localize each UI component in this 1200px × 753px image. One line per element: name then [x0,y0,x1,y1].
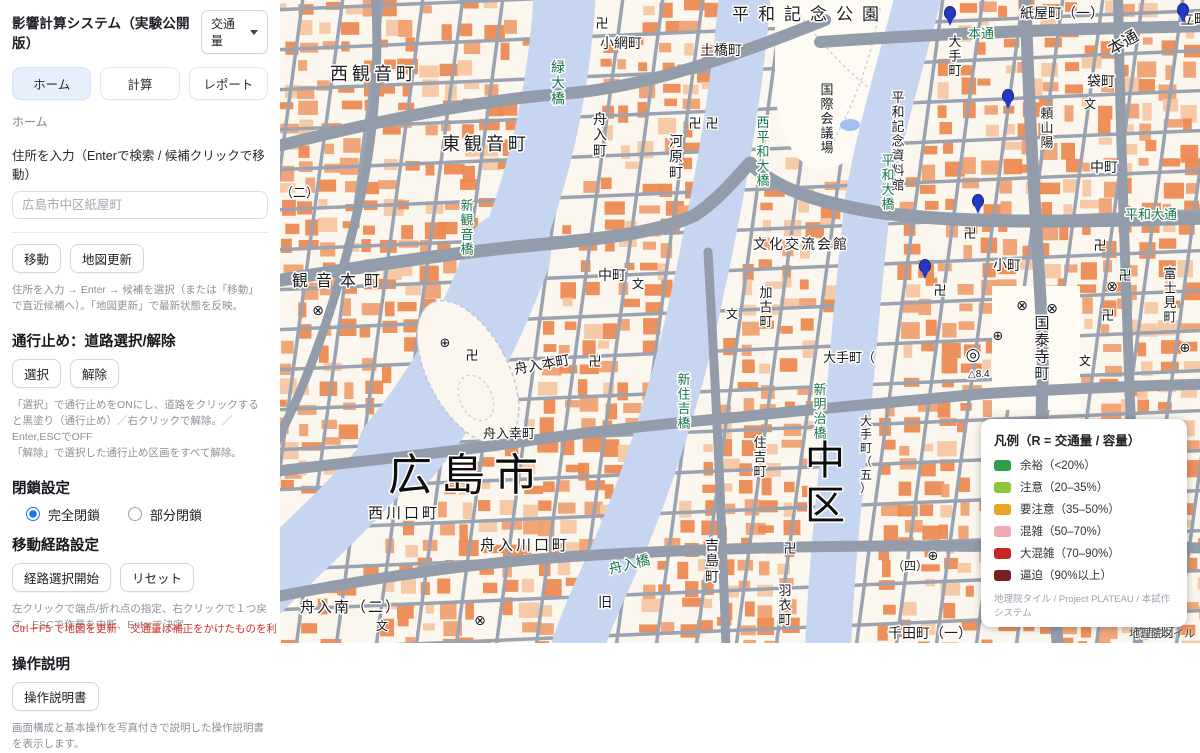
map-label: 西川口町 [368,505,440,522]
map-label: 袋町 [1087,73,1115,89]
mode-select-value: 交通量 [211,15,243,49]
app-title: 影響計算システム（実験公開版） [12,12,201,52]
map-update-button[interactable]: 地図更新 [70,244,144,273]
route-heading: 移動経路設定 [12,534,268,555]
legend-chip-pink [994,526,1011,537]
map-symbol: 卍 [783,541,796,556]
map-label: 大手町（五） [860,414,872,495]
map-label: 河原町 [669,133,683,180]
tab-report[interactable]: レポート [189,67,268,100]
address-input[interactable] [12,191,268,219]
chevron-down-icon [250,30,258,35]
map-label: 中町 [1090,159,1118,175]
map-label: 紙屋町（一） [1020,5,1104,21]
map-label: 新住吉橋 [677,372,690,431]
legend-title: 凡例（R = 交通量 / 容量） [994,430,1174,449]
map-label: 大手町 [948,34,961,78]
map-label: 新明治橋 [813,382,826,441]
map-label: 小網町 [600,35,642,51]
legend-label: 混雑（50–70%） [1020,523,1108,539]
legend-chip-green [994,460,1011,471]
map-symbol: ⊗ [1106,278,1118,294]
manual-help: 画面構成と基本操作を写真付きで説明した操作説明書を表示します。 [12,720,268,753]
legend-chip-red [994,548,1011,559]
legend-chip-darkred [994,570,1011,581]
route-reset-button[interactable]: リセット [120,563,194,592]
map-symbol: ⊗ [1046,300,1058,316]
map-label: （二） [280,185,319,200]
map-label: （四） [892,559,928,573]
tab-home[interactable]: ホーム [12,67,91,100]
map-label: 舟入川口町 [480,537,570,554]
legend-item: 大混雑（70–90%） [994,545,1174,561]
road-closure-help-2: 「解除」で選択した通行止め区画をすべて解除。 [12,447,242,459]
map-symbol: ⊗ [474,612,486,628]
address-buttons: 移動 地図更新 [12,244,268,273]
map-label: 平和大通 [1125,207,1177,222]
map-symbol: 卍 [1093,238,1106,253]
manual-heading: 操作説明 [12,653,268,674]
map-label: 広島市 [388,451,547,500]
map-canvas[interactable]: 卍卍卍卍卍卍卍卍卍卍卍⊗⊗⊗⊗⊗⊕⊕⊕⊕文文文文文◎平和記念公園小網町土橋町西観… [280,0,1200,643]
map-label: 文化交流会館 [753,236,849,252]
move-button[interactable]: 移動 [12,244,61,273]
radio-partial-closure[interactable]: 部分閉鎖 [128,505,202,524]
legend-label: 逼迫（90%以上） [1020,567,1112,583]
map-symbol: 卍 [705,116,718,131]
map-label: 羽衣町 [778,583,791,627]
map-symbol: 卍 [933,283,946,298]
map-label: 千田町（一） [888,625,972,641]
map-symbol: 卍 [963,226,976,241]
map-symbol: 卍 [1118,268,1131,283]
map-label: 平和大橋 [881,153,894,212]
map-label: 国泰寺町 [1034,315,1049,382]
map-symbol: ⊕ [1180,340,1191,355]
map-symbol: ◎ [966,345,981,364]
tab-bar: ホーム 計算 レポート [12,67,268,100]
map-label: 緑大橋 [551,59,565,106]
map-symbol: 卍 [595,16,608,31]
map-label: 舟入南（二） [300,599,402,616]
map-symbol: ⊕ [928,548,939,563]
map-label: 新観音橋 [460,198,473,257]
legend-item: 要注意（35–50%） [994,501,1174,517]
map-label: 富士見町 [1163,266,1176,325]
map-label: 平和記念公園 [732,4,888,24]
map-symbol: ⊕ [993,328,1004,343]
map-label: 観音本町 [292,272,388,290]
map-symbol: 文 [1084,96,1096,111]
closure-options: 完全閉鎖 部分閉鎖 [12,505,268,524]
closure-select-button[interactable]: 選択 [12,359,61,388]
map-label: 土橋町 [700,42,742,58]
radio-full-closure-label: 完全閉鎖 [48,505,100,524]
map-symbol: 卍 [688,116,701,131]
map-label: 小町 [993,257,1021,273]
map-label: 本通 [968,26,994,41]
map-label: 中町 [598,267,626,283]
mode-select[interactable]: 交通量 [201,10,268,54]
map-label: 東観音町 [442,134,530,154]
legend-item: 逼迫（90%以上） [994,567,1174,583]
legend-attribution: 地理院タイル / Project PLATEAU / 本試作システム [994,591,1174,619]
map-label: 吉島町 [705,537,719,584]
map-label: 中区 [805,439,845,528]
sidebar-header: 影響計算システム（実験公開版） 交通量 [12,10,268,54]
map-symbol: 文 [632,276,644,291]
address-label: 住所を入力（Enterで検索 / 候補クリックで移動） [12,145,268,183]
sidebar: 影響計算システム（実験公開版） 交通量 ホーム 計算 レポート ホーム 住所を入… [0,0,280,643]
map-symbol: 卍 [465,348,478,363]
legend-label: 大混雑（70–90%） [1020,545,1120,561]
legend-panel: 凡例（R = 交通量 / 容量） 余裕（<20%） 注意（20–35%） 要注意… [981,419,1187,627]
map-attribution: 地理院タイル [1129,625,1195,641]
radio-full-closure[interactable]: 完全閉鎖 [26,505,100,524]
legend-item: 注意（20–35%） [994,479,1174,495]
road-closure-help-1: 「選択」で通行止めをONにし、道路をクリックすると黒塗り（通行止め）／右クリック… [12,399,259,444]
road-closure-help: 「選択」で通行止めをONにし、道路をクリックすると黒塗り（通行止め）／右クリック… [12,397,268,462]
map-label: 国際会議場 [820,82,833,155]
legend-label: 余裕（<20%） [1020,457,1096,473]
sidebar-footer: Ctrl＋F5 で地図を更新 交通量は補正をかけたものを利用しています [12,621,276,636]
map-label: 舟入町 [593,111,607,158]
manual-button[interactable]: 操作説明書 [12,682,99,711]
legend-chip-amber [994,504,1011,515]
map-symbol: 卍 [1101,308,1114,323]
map-label: △8.4 [968,369,990,380]
legend-item: 混雑（50–70%） [994,523,1174,539]
legend-item: 余裕（<20%） [994,457,1174,473]
radio-partial-closure-label: 部分閉鎖 [150,505,202,524]
map-label: 大手町（ [823,350,875,365]
tab-calc[interactable]: 計算 [100,67,179,100]
map-label: 西平和大橋 [756,115,769,188]
radio-on-icon [26,507,40,521]
map-label: 頼山陽 [1040,106,1053,150]
map-symbol: 文 [376,618,388,633]
footer-note-1: Ctrl＋F5 で地図を更新 [12,621,117,636]
route-buttons: 経路選択開始 リセット [12,563,268,592]
map-symbol: 文 [1079,353,1091,368]
breadcrumb: ホーム [12,113,268,130]
legend-chip-lightgreen [994,482,1011,493]
road-closure-heading: 通行止め：道路選択/解除 [12,330,268,351]
map-symbol: 文 [726,306,738,321]
map-label: 西観音町 [330,64,418,84]
address-help: 住所を入力 → Enter → 候補を選択（または「移動」で直近候補へ）。「地図… [12,282,268,315]
map-symbol: ⊗ [1016,297,1028,313]
map-symbol: 卍 [588,354,601,369]
map-label: 舟入幸町 [483,426,535,441]
map-label: 旧 [598,594,612,610]
radio-off-icon [128,507,142,521]
divider [12,232,268,233]
road-closure-buttons: 選択 解除 [12,359,268,388]
manual-buttons: 操作説明書 [12,682,268,711]
footer-note-2: 交通量は補正をかけたものを利用しています [130,621,276,636]
map-symbol: ⊗ [312,302,324,318]
map-symbol: ⊕ [440,335,451,350]
map-label: 住吉町 [753,435,766,479]
legend-label: 要注意（35–50%） [1020,501,1120,517]
closure-settings-heading: 閉鎖設定 [12,477,268,498]
legend-label: 注意（20–35%） [1020,479,1108,495]
route-start-button[interactable]: 経路選択開始 [12,563,111,592]
map-label: 加古町 [759,285,772,329]
closure-clear-button[interactable]: 解除 [70,359,119,388]
